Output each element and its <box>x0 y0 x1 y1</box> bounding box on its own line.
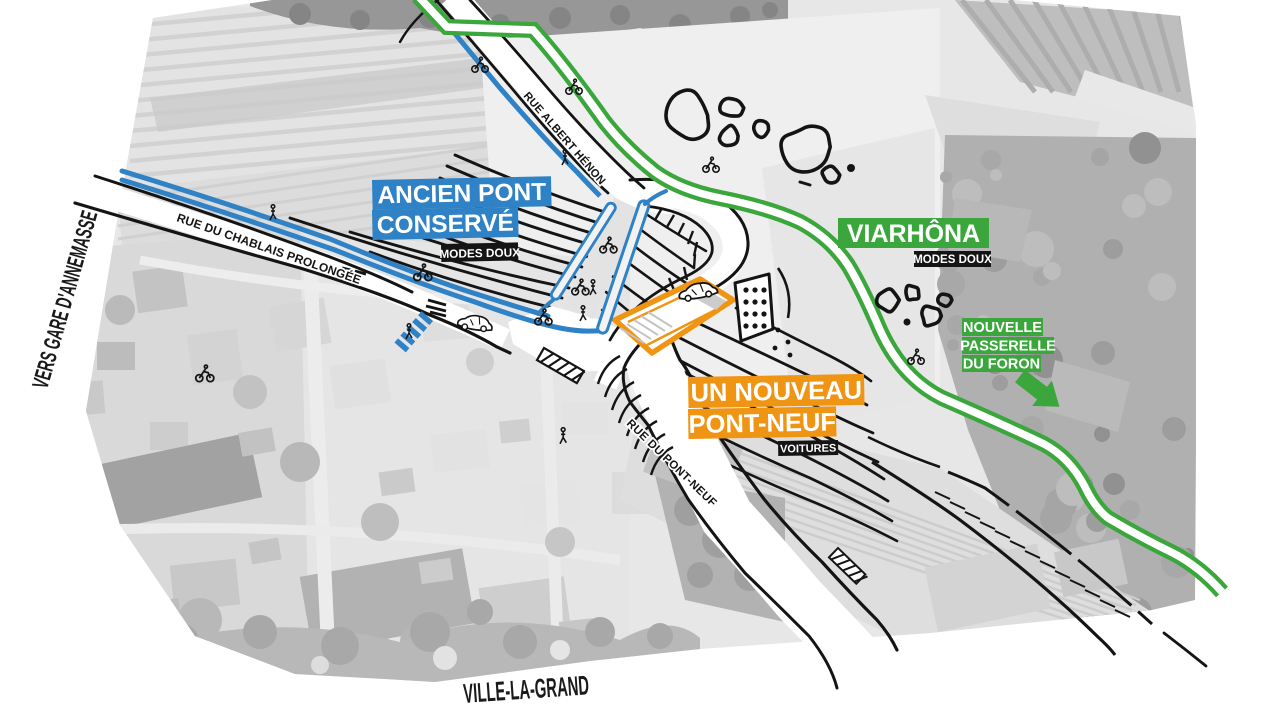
svg-text:MODES DOUX: MODES DOUX <box>913 254 992 266</box>
svg-text:ANCIEN PONT: ANCIEN PONT <box>377 179 546 210</box>
svg-text:VIARHÔNA: VIARHÔNA <box>847 218 980 248</box>
svg-text:VOITURES: VOITURES <box>780 442 836 455</box>
svg-text:CONSERVÉ: CONSERVÉ <box>376 209 514 240</box>
svg-text:DU FORON: DU FORON <box>963 357 1040 373</box>
svg-text:UN NOUVEAU: UN NOUVEAU <box>690 376 862 407</box>
svg-text:PONT-NEUF: PONT-NEUF <box>688 408 836 439</box>
svg-text:MODES DOUX: MODES DOUX <box>439 245 520 261</box>
svg-text:NOUVELLE: NOUVELLE <box>963 320 1042 336</box>
svg-text:VERS GARE D'ANNEMASSE: VERS GARE D'ANNEMASSE <box>28 208 103 392</box>
svg-text:PASSERELLE: PASSERELLE <box>960 339 1056 355</box>
